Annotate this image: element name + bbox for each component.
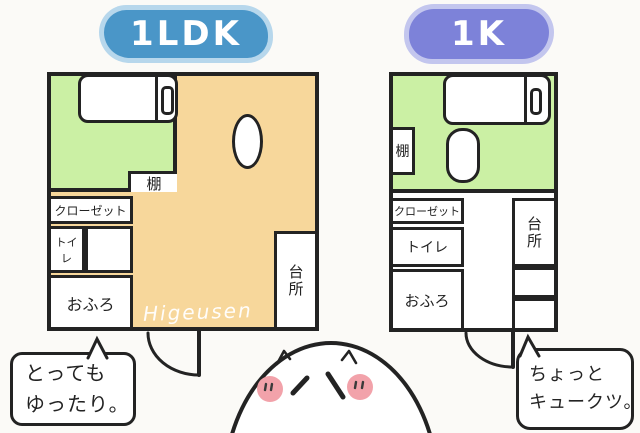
shelf-room-1k: 棚 [393, 127, 415, 175]
closet-label: クローゼット [54, 202, 126, 219]
watermark: Higeusen [143, 298, 253, 326]
bedroom-1ldk: 棚 [51, 76, 177, 192]
bed-divider [155, 77, 158, 120]
utility-room-1ldk [85, 226, 133, 273]
kitchen-room-1k: 台所 [512, 198, 554, 267]
door-swing-arc [466, 333, 513, 367]
illustration-canvas: 1LDK 1K 棚 クローゼット トイレ おふろ 台所 [0, 0, 640, 433]
character-head [222, 341, 440, 433]
speech-left-line1: とっても [25, 358, 133, 389]
badge-1ldk-label: 1LDK [130, 14, 242, 54]
bed-divider [524, 77, 527, 122]
bath-room-1ldk: おふろ [51, 275, 133, 327]
kitchen-room-1ldk: 台所 [274, 231, 315, 327]
kitchen-label: 台所 [286, 264, 307, 298]
table [232, 114, 263, 169]
bath-label: おふろ [404, 290, 449, 311]
bed [443, 74, 551, 125]
toilet-label: トイレ [406, 237, 448, 257]
pillow [530, 88, 542, 115]
badge-1k-label: 1K [451, 14, 507, 54]
speech-right-line1: ちょっと [529, 361, 631, 389]
closet-label: クローゼット [394, 203, 460, 219]
bedroom-1k: 棚 [393, 76, 554, 193]
kitchen-label: 台所 [524, 216, 545, 250]
bath-label: おふろ [66, 291, 114, 315]
speech-bubble-right: ちょっと キュークツ。 [516, 348, 634, 430]
speech-left-line2: ゆったり。 [25, 389, 133, 420]
shelf-label: 棚 [396, 141, 410, 161]
floorplan-1ldk: 棚 クローゼット トイレ おふろ 台所 Higeusen [47, 72, 319, 331]
speech-right-line2: キュークツ。 [529, 389, 631, 417]
table [446, 128, 480, 183]
counter-box-1k [512, 267, 554, 298]
closet-room-1ldk: クローゼット [51, 196, 133, 224]
door-1ldk [145, 329, 205, 379]
bath-room-1k: おふろ [393, 269, 464, 328]
toilet-label: トイレ [51, 234, 82, 266]
bed [78, 74, 178, 123]
speech-tail-right [514, 332, 550, 358]
shelf-room-1ldk: 棚 [128, 171, 177, 192]
counter-box2-1k [512, 298, 554, 328]
speech-tail-left [80, 334, 120, 360]
badge-1ldk: 1LDK [104, 10, 268, 58]
badge-1k: 1K [409, 9, 549, 59]
toilet-room-1k: トイレ [393, 227, 464, 267]
door-swing-arc [148, 333, 199, 375]
door-1k [462, 328, 518, 372]
toilet-room-1ldk: トイレ [51, 226, 85, 273]
pillow [161, 86, 174, 115]
closet-room-1k: クローゼット [393, 198, 464, 224]
speech-bubble-left: とっても ゆったり。 [10, 352, 136, 426]
shelf-label: 棚 [146, 173, 161, 194]
floorplan-1k: 棚 クローゼット トイレ おふろ 台所 [389, 72, 558, 332]
